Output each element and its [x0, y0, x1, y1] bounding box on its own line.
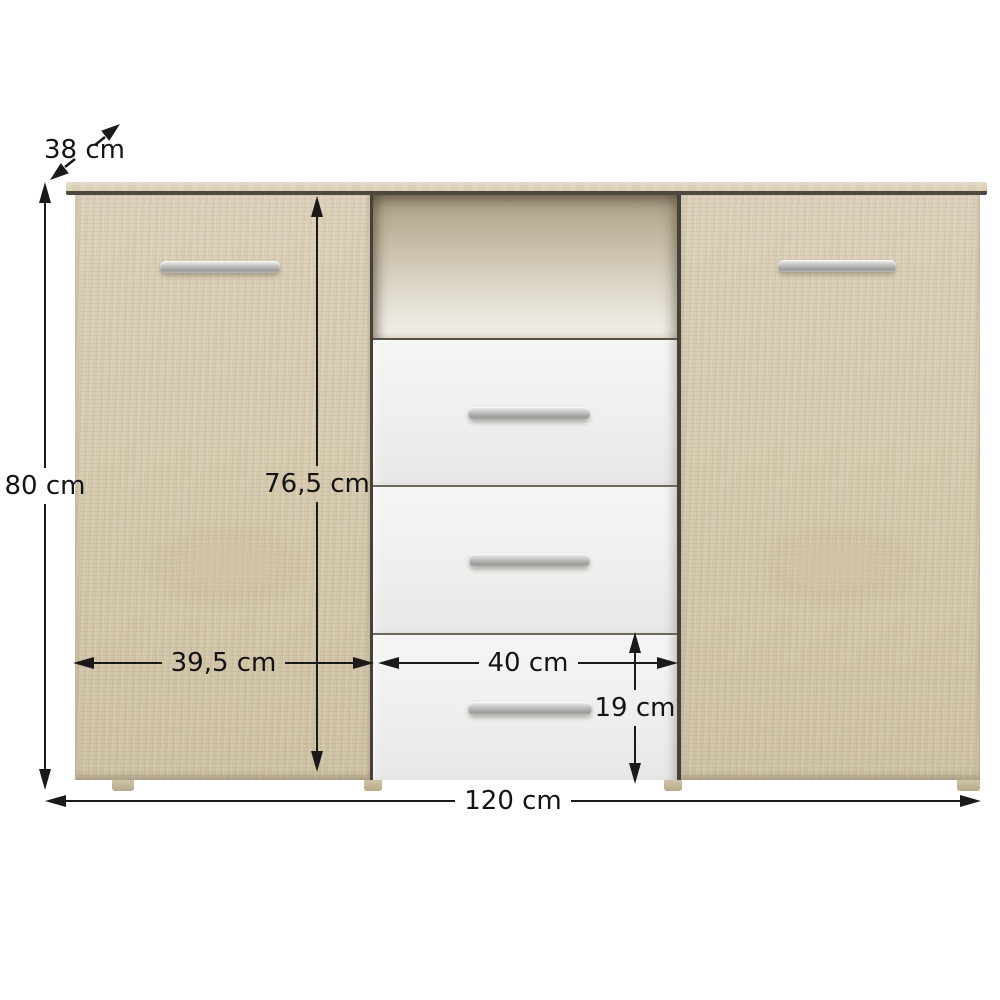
total-width-dimension-label: 120 cm	[464, 788, 562, 814]
product-dimension-diagram: 38 cm 80 cm 76,5 cm 19 cm 39,5 cm 40 cm	[0, 0, 1000, 1000]
open-shelf-niche	[373, 195, 677, 338]
drawer-height-dimension-label: 19 cm	[595, 695, 676, 721]
interior-height-dimension-arrow: 76,5 cm	[252, 196, 382, 772]
dimension-line	[285, 662, 353, 664]
top-drawer-handle	[468, 407, 590, 420]
arrow-right-icon	[353, 657, 374, 669]
arrow-right-icon	[657, 657, 678, 669]
dimension-line	[399, 662, 479, 664]
depth-dimension-label: 38 cm	[44, 137, 125, 163]
dimension-line	[571, 800, 960, 802]
arrow-down-icon	[311, 751, 323, 772]
arrow-left-icon	[45, 795, 66, 807]
cabinet-top-board	[66, 182, 987, 195]
arrow-right-icon	[960, 795, 981, 807]
arrow-up-icon	[311, 196, 323, 217]
arrow-left-icon	[378, 657, 399, 669]
right-door	[681, 195, 980, 780]
arrow-up-icon	[39, 182, 51, 203]
height-dimension-label: 80 cm	[5, 473, 86, 499]
total-width-dimension-arrow: 120 cm	[45, 787, 981, 815]
dimension-line	[66, 800, 455, 802]
dimension-line	[44, 504, 46, 769]
height-dimension-arrow: 80 cm	[0, 182, 101, 790]
dimension-line	[634, 726, 636, 763]
interior-height-dimension-label: 76,5 cm	[264, 471, 370, 497]
door-width-dimension-label: 39,5 cm	[171, 650, 277, 676]
drawer-width-dimension-arrow: 40 cm	[378, 649, 678, 677]
dimension-line	[94, 662, 162, 664]
dimension-line	[316, 217, 318, 466]
middle-drawer-handle	[469, 554, 590, 567]
dimension-line	[578, 662, 658, 664]
bottom-drawer-handle	[468, 702, 592, 715]
arrow-down-icon	[629, 763, 641, 784]
door-width-dimension-arrow: 39,5 cm	[73, 649, 374, 677]
dimension-line	[44, 203, 46, 468]
dimension-line	[316, 502, 318, 751]
right-door-handle	[778, 260, 896, 272]
drawer-width-dimension-label: 40 cm	[488, 650, 569, 676]
arrow-left-icon	[73, 657, 94, 669]
